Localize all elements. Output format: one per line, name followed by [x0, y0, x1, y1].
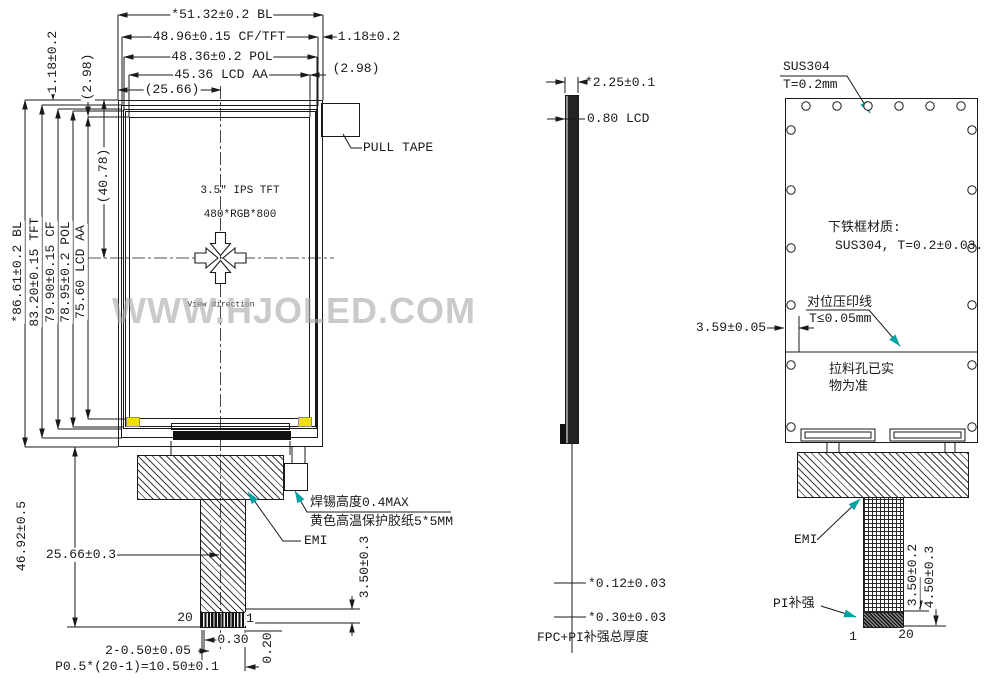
- emi-label-back: EMI: [793, 533, 818, 547]
- pin-20-label-front: 20: [176, 611, 194, 625]
- dim-end-pins: 2-0.50±0.05: [104, 644, 192, 658]
- side-profile-step: [560, 424, 566, 444]
- pin-1-label-back: 1: [848, 630, 858, 644]
- emi-label-front: EMI: [303, 534, 328, 548]
- dim-half-width: (25.66): [144, 83, 201, 97]
- dim-pol-height: 78.95±0.2 POL: [59, 220, 73, 323]
- solder-height-note: 焊锡高度0.4MAX: [309, 496, 410, 510]
- bonding-bar: [173, 431, 291, 440]
- dim-tft-height: 83.20±0.15 TFT: [28, 216, 42, 327]
- dim-stiffener-front: 3.50±0.3: [358, 535, 372, 599]
- lcd-dimension-drawing: *51.32±0.2 BL 48.96±0.15 CF/TFT 48.36±0.…: [0, 0, 1000, 689]
- watermark: WWW.HJOLED.COM: [112, 290, 476, 332]
- frame-slots: [801, 429, 965, 441]
- dim-pi-thickness: *0.30±0.03: [587, 611, 667, 625]
- dim-lcd-thickness: 0.80 LCD: [586, 112, 650, 126]
- dim-aa-width: 45.36 LCD AA: [173, 68, 269, 82]
- dim-cftft-width: 48.96±0.15 CF/TFT: [152, 30, 287, 44]
- yellow-tape-right: [298, 417, 312, 427]
- align-line-label: 对位压印线: [806, 296, 873, 310]
- dim-top-half-left: (2.98): [81, 53, 95, 102]
- pin-1-label-front: 1: [245, 612, 255, 626]
- dim-pin-pitch: P0.5*(20-1)=10.50±0.1: [54, 660, 220, 674]
- dim-bl-width: *51.32±0.2 BL: [170, 8, 273, 22]
- dim-gap: 0.20: [261, 631, 275, 664]
- dim-total-tail: 4.50±0.3: [923, 545, 937, 609]
- drawing-linework: [0, 0, 1000, 689]
- dim-pin-width: 0.30: [216, 633, 249, 647]
- dim-right-half: (2.98): [332, 62, 381, 76]
- dim-right-offset: 1.18±0.2: [337, 30, 401, 44]
- frame-material-label: SUS304: [782, 60, 831, 74]
- dim-fpc-thickness: *0.12±0.03: [587, 577, 667, 591]
- pull-tape-label: PULL TAPE: [362, 141, 434, 155]
- dim-bl-height: *86.61±0.2 BL: [11, 220, 25, 323]
- protective-tape-note: 黄色高温保护胶纸5*5MM: [309, 515, 454, 529]
- hole-note-line2: 物为准: [828, 380, 869, 394]
- yellow-tape-left: [126, 417, 140, 427]
- frame-thickness-label: T=0.2mm: [782, 78, 839, 92]
- pi-stiffener-label: PI补强: [772, 597, 816, 611]
- frame-note-line2: SUS304, T=0.2±0.03.: [834, 239, 984, 253]
- side-caption: FPC+PI补强总厚度: [536, 631, 650, 645]
- panel-resolution-label: 480*RGB*800: [203, 209, 278, 221]
- dim-cf-height: 79.90±0.15 CF: [44, 220, 58, 323]
- dim-aa-height: 75.60 LCD AA: [74, 224, 88, 320]
- dim-top-offset-left: 1.18±0.2: [46, 30, 60, 94]
- align-thickness-label: T≤0.05mm: [808, 312, 872, 326]
- frame-note-line1: 下铁框材质:: [827, 221, 902, 235]
- dim-stiffener-back: 3.50±0.2: [906, 543, 920, 607]
- dim-total-thickness: *2.25±0.1: [584, 76, 656, 90]
- frame-holes: [787, 102, 976, 431]
- dim-half-height: (40.78): [97, 148, 111, 205]
- dim-tail-center: 25.66±0.3: [45, 548, 117, 562]
- pin-20-label-back: 20: [897, 628, 915, 642]
- hole-note-line1: 拉料孔已实: [828, 363, 895, 377]
- dim-fpc-height: 46.92±0.5: [15, 500, 29, 572]
- dim-frame-inset: 3.59±0.05: [695, 321, 767, 335]
- panel-size-label: 3.5" IPS TFT: [199, 185, 280, 197]
- dim-pol-width: 48.36±0.2 POL: [170, 50, 273, 64]
